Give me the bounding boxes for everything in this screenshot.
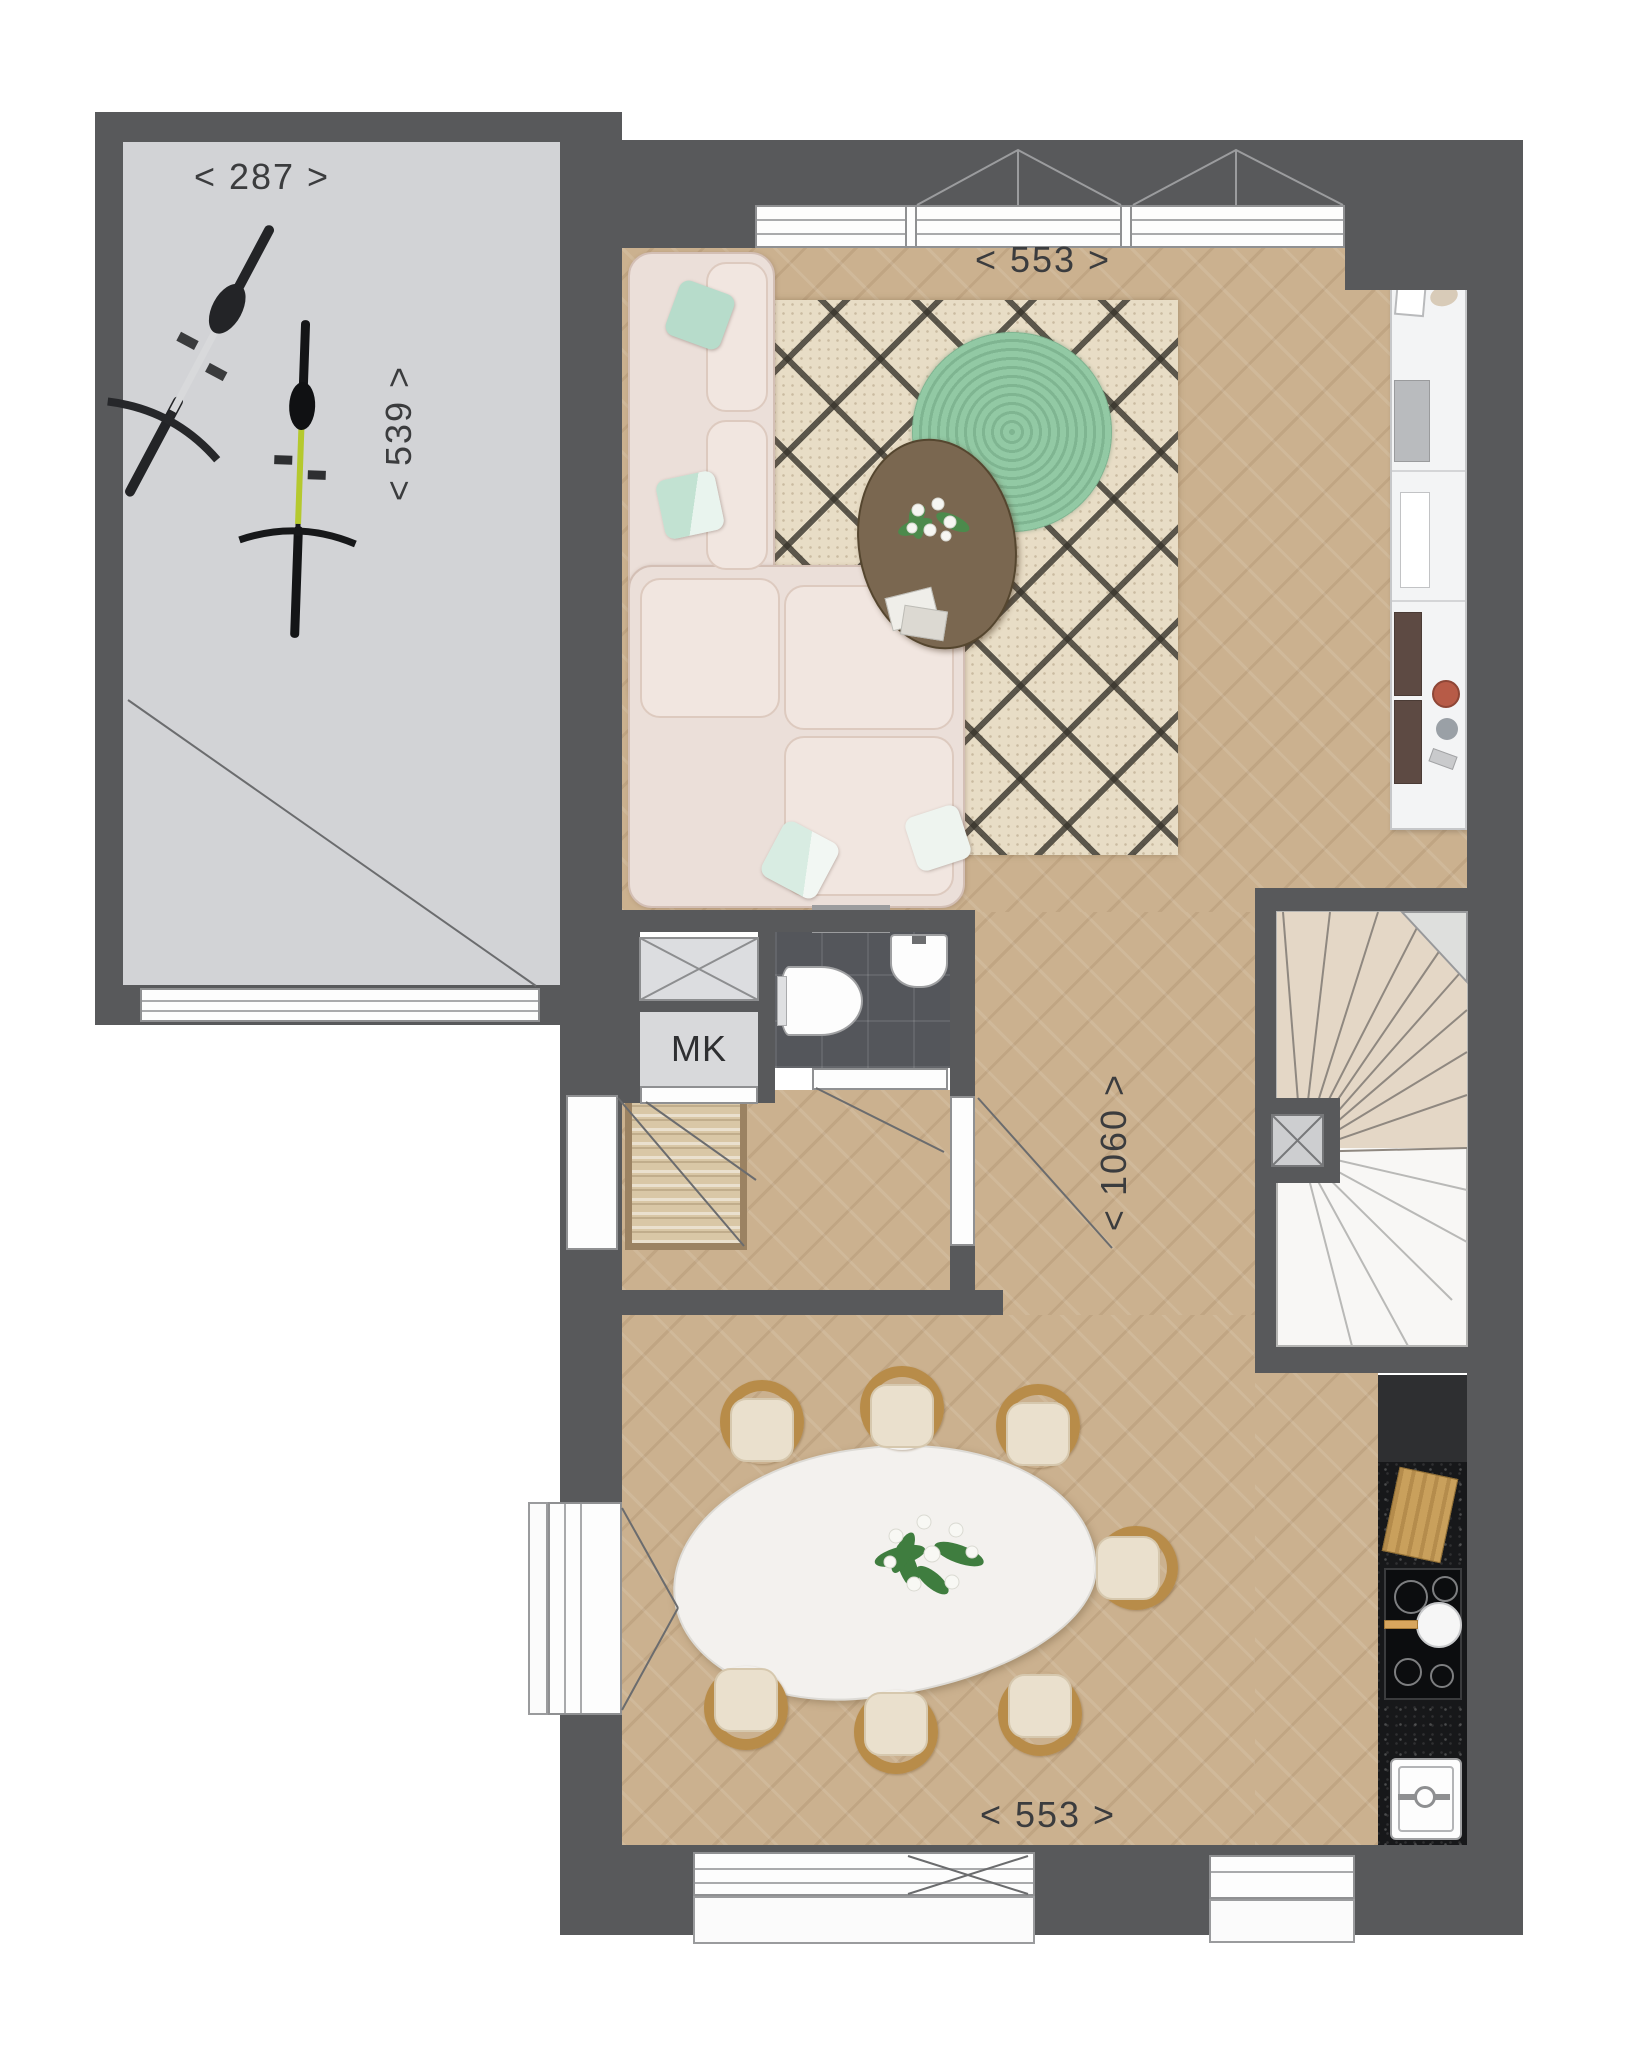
- sofa-cushion: [640, 578, 780, 718]
- doormat-icon: [625, 1095, 747, 1250]
- toilet-cistern: [777, 976, 787, 1026]
- window-icon-dining-bottom: [693, 1852, 1035, 1896]
- garage-floor: [123, 140, 560, 985]
- toilet-icon: [779, 966, 863, 1036]
- chair-icon: [850, 1686, 942, 1778]
- wall-stairwell-left: [1255, 888, 1277, 1346]
- dimension-house-depth: < 1060 >: [1093, 1073, 1135, 1231]
- chair-icon: [716, 1376, 808, 1468]
- house-wall-top-left-fill: [622, 205, 755, 248]
- cabinet-appliance: [1394, 380, 1430, 462]
- decor-jar-icon: [1436, 718, 1458, 740]
- mk-door: [640, 1086, 758, 1104]
- wall-mk-left: [622, 932, 640, 1103]
- faucet-icon: [912, 936, 926, 944]
- garage-wall-top: [95, 112, 622, 142]
- wall-living-south: [622, 910, 975, 932]
- wall-stairwell-bottom: [1255, 1346, 1467, 1373]
- garage-house-shared-wall: [560, 112, 622, 1025]
- wall-stairwell-top: [1255, 888, 1467, 912]
- oven-icon: [1394, 612, 1422, 696]
- window-sill: [528, 1502, 548, 1715]
- front-door: [566, 1095, 618, 1250]
- window-mullion: [1120, 205, 1132, 248]
- window-icon-kitchen-bottom: [1209, 1855, 1355, 1899]
- house-wall-right: [1467, 205, 1523, 1935]
- pillow-icon: [654, 469, 725, 540]
- chair-icon: [856, 1362, 948, 1454]
- kitchen-strip-floor: [1255, 1373, 1378, 1845]
- garage-wall-left: [95, 112, 123, 1025]
- decor-jar-icon: [1432, 680, 1460, 708]
- sink-faucet-icon: [1414, 1786, 1436, 1808]
- chair-icon: [700, 1662, 792, 1754]
- pan-handle: [1384, 1620, 1418, 1629]
- hall-living-door: [950, 1096, 975, 1246]
- pan-icon: [1416, 1602, 1462, 1648]
- oven-icon: [1394, 700, 1422, 784]
- kitchen-tall-cabinet: [1378, 1375, 1467, 1462]
- toilet-door: [812, 1068, 948, 1090]
- sideboard-divider: [1392, 600, 1465, 602]
- dimension-garage-depth: < 539 >: [378, 365, 420, 501]
- mk-label: MK: [671, 1028, 727, 1070]
- dimension-garage-width: < 287 >: [194, 156, 330, 198]
- chair-icon: [1090, 1522, 1182, 1614]
- shaft-cross-icon: [640, 938, 758, 1000]
- window-mullion: [905, 205, 917, 248]
- wall-mk-shelf: [640, 1000, 758, 1012]
- cabinet-tray: [1400, 492, 1430, 588]
- house-wall-top: [622, 140, 1523, 205]
- chair-icon: [994, 1668, 1086, 1760]
- stairs-icon: [1277, 912, 1467, 1346]
- sideboard-divider: [1392, 470, 1465, 472]
- dimension-living-width: < 553 >: [975, 239, 1111, 281]
- wall-mk-toilet: [758, 932, 775, 1103]
- window-sill: [1209, 1899, 1355, 1943]
- wall-hall-south: [560, 1290, 1003, 1315]
- chair-icon: [992, 1380, 1084, 1472]
- floor-plan: MK: [0, 0, 1630, 2048]
- window-sill: [693, 1896, 1035, 1944]
- dimension-dining-width: < 553 >: [980, 1794, 1116, 1836]
- garage-door: [140, 988, 540, 1022]
- window-icon-dining-left: [548, 1502, 622, 1715]
